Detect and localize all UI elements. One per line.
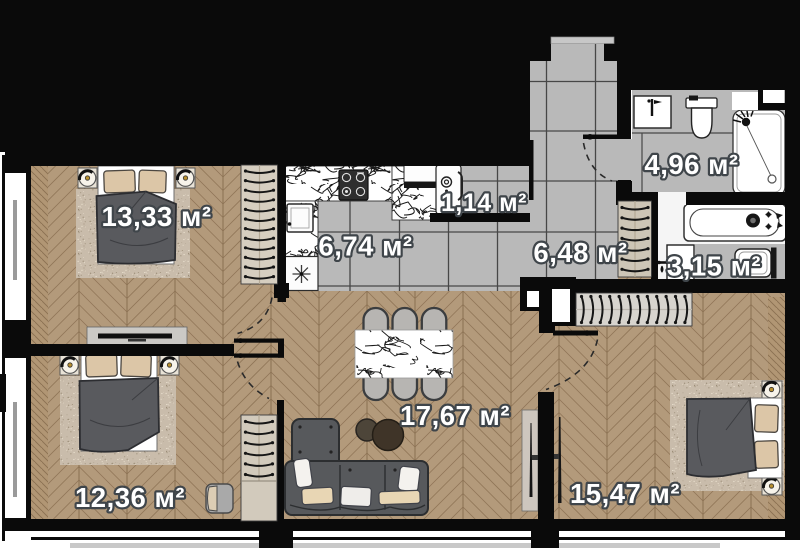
svg-text:1,14 м²: 1,14 м²: [441, 189, 527, 217]
svg-text:12,36 м²: 12,36 м²: [75, 482, 185, 513]
svg-text:4,96 м²: 4,96 м²: [644, 149, 738, 180]
svg-text:17,67 м²: 17,67 м²: [400, 400, 510, 431]
svg-text:13,33 м²: 13,33 м²: [102, 201, 212, 232]
svg-text:3,15 м²: 3,15 м²: [667, 251, 761, 282]
svg-text:6,74 м²: 6,74 м²: [318, 231, 412, 262]
svg-text:15,47 м²: 15,47 м²: [570, 478, 680, 509]
svg-text:6,48 м²: 6,48 м²: [533, 237, 627, 268]
